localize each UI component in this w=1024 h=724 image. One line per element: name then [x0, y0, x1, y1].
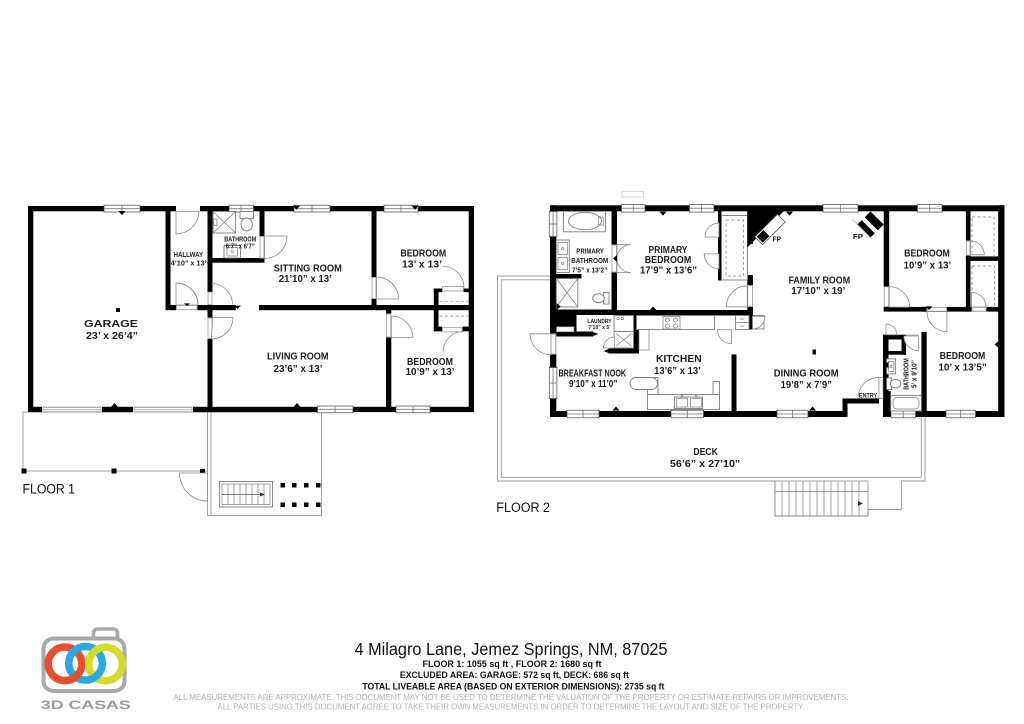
svg-text:13’ x 13’: 13’ x 13’: [402, 259, 442, 271]
svg-text:ALL PARTIES USING THIS DOCUMEN: ALL PARTIES USING THIS DOCUMENT AGREE TO…: [218, 703, 805, 712]
svg-text:DINING ROOM: DINING ROOM: [774, 367, 839, 379]
svg-text:4’10” x 13’: 4’10” x 13’: [171, 260, 207, 267]
svg-text:4 Milagro Lane, Jemez Springs,: 4 Milagro Lane, Jemez Springs, NM, 87025: [355, 639, 668, 659]
svg-text:13’6” x 13’: 13’6” x 13’: [654, 365, 701, 377]
svg-text:GARAGE: GARAGE: [84, 318, 138, 330]
svg-text:LAUNDRY: LAUNDRY: [587, 319, 611, 325]
svg-text:ALL MEASUREMENTS ARE APPROXIMA: ALL MEASUREMENTS ARE APPROXIMATE. THIS D…: [174, 693, 849, 702]
svg-text:56’6” x 27’10”: 56’6” x 27’10”: [670, 458, 740, 470]
svg-text:6’7” x 6’7”: 6’7” x 6’7”: [226, 244, 255, 251]
svg-text:BATHROOM: BATHROOM: [571, 258, 608, 265]
svg-text:TOTAL LIVEABLE AREA (BASED ON: TOTAL LIVEABLE AREA (BASED ON EXTERIOR D…: [362, 681, 664, 691]
svg-text:DECK: DECK: [693, 446, 718, 458]
svg-text:FLOOR 1: 1055 sq ft , FLOOR 2:: FLOOR 1: 1055 sq ft , FLOOR 2: 1680 sq f…: [423, 659, 602, 669]
svg-text:FLOOR 1: FLOOR 1: [23, 481, 76, 496]
svg-text:3D CASAS: 3D CASAS: [41, 698, 131, 712]
svg-text:10’9” x 13’: 10’9” x 13’: [406, 366, 455, 378]
svg-text:5’ x 9’10”: 5’ x 9’10”: [912, 360, 919, 388]
svg-text:21’10” x 13’: 21’10” x 13’: [279, 273, 332, 285]
svg-text:10’ x 13’5”: 10’ x 13’5”: [938, 362, 986, 374]
svg-text:BATHROOM: BATHROOM: [224, 237, 256, 244]
svg-text:BATHROOM: BATHROOM: [904, 358, 911, 390]
svg-text:FP: FP: [773, 237, 782, 244]
svg-text:17’9” x 13’6”: 17’9” x 13’6”: [640, 265, 697, 277]
svg-text:19’8” x 7’9”: 19’8” x 7’9”: [781, 379, 832, 391]
svg-text:9’10” x 11’0”: 9’10” x 11’0”: [569, 378, 617, 390]
svg-text:BEDROOM: BEDROOM: [940, 350, 986, 362]
svg-text:23’6” x 13’: 23’6” x 13’: [274, 363, 323, 375]
svg-text:7’5” x 13’2”: 7’5” x 13’2”: [572, 268, 607, 275]
svg-text:EXCLUDED AREA: GARAGE: 572 sq: EXCLUDED AREA: GARAGE: 572 sq ft, DECK: …: [400, 670, 629, 680]
svg-text:7’10” x 5’: 7’10” x 5’: [589, 325, 611, 331]
svg-text:PRIMARY: PRIMARY: [576, 249, 604, 256]
svg-text:FLOOR 2: FLOOR 2: [496, 500, 550, 515]
svg-text:ENTRY: ENTRY: [859, 393, 878, 400]
svg-text:BEDROOM: BEDROOM: [904, 248, 950, 260]
svg-text:FP: FP: [853, 234, 864, 241]
svg-text:LIVING ROOM: LIVING ROOM: [267, 351, 329, 363]
svg-text:BEDROOM: BEDROOM: [400, 247, 446, 259]
svg-text:KITCHEN: KITCHEN: [656, 353, 702, 365]
svg-text:23’ x 26’4”: 23’ x 26’4”: [86, 330, 138, 342]
svg-text:17’10” x 19’: 17’10” x 19’: [791, 285, 845, 297]
svg-text:HALLWAY: HALLWAY: [174, 252, 204, 259]
svg-text:10’9” x 13’: 10’9” x 13’: [904, 260, 952, 272]
